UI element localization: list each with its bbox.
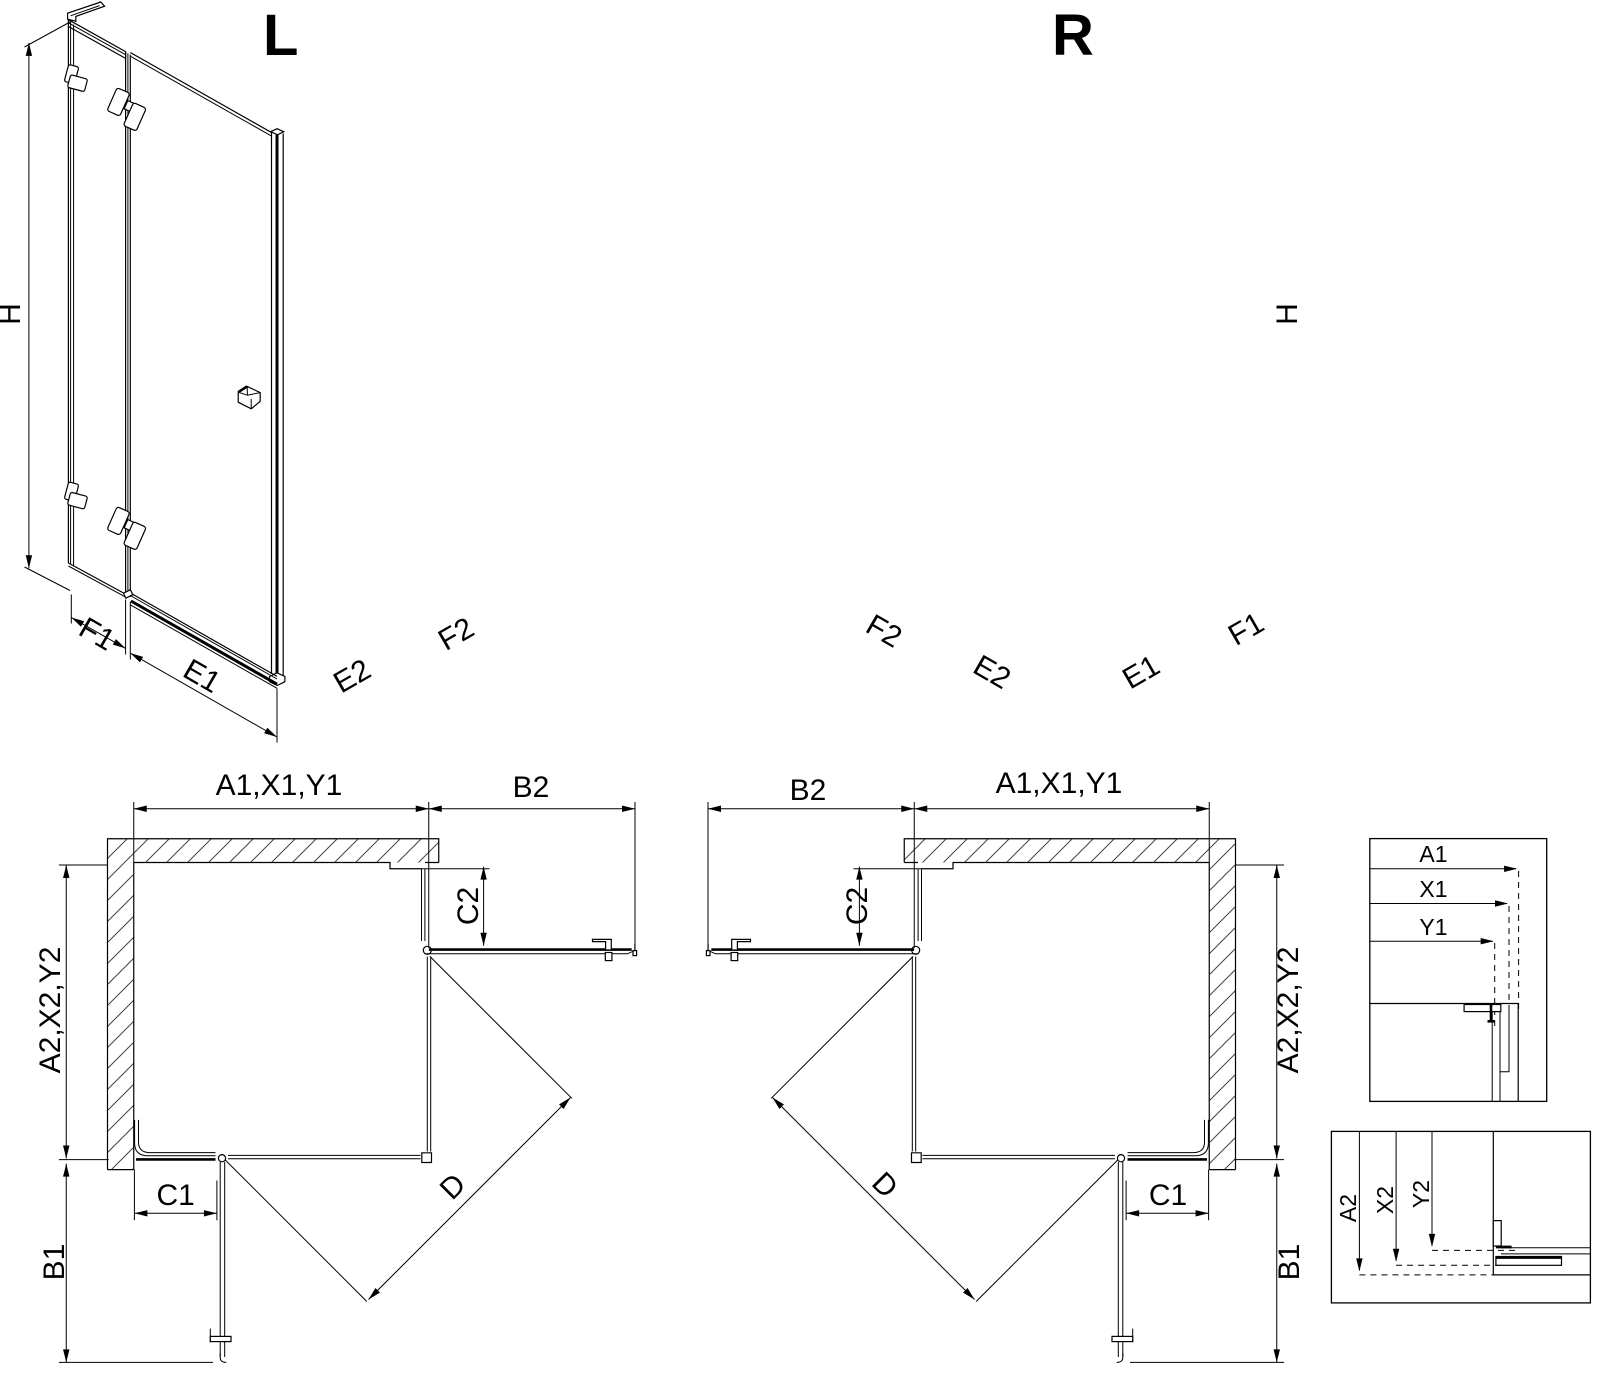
svg-text:H: H	[1271, 303, 1304, 325]
svg-text:Y2: Y2	[1408, 1180, 1434, 1208]
svg-text:C1: C1	[157, 1179, 195, 1212]
svg-text:A2,X2,Y2: A2,X2,Y2	[34, 947, 67, 1074]
svg-text:A1,X1,Y1: A1,X1,Y1	[996, 767, 1123, 800]
svg-text:F2: F2	[433, 611, 480, 657]
svg-text:H: H	[0, 303, 27, 325]
svg-text:C2: C2	[841, 887, 874, 925]
svg-text:A2: A2	[1335, 1194, 1361, 1222]
svg-text:E2: E2	[968, 649, 1016, 696]
svg-text:E1: E1	[1117, 649, 1165, 696]
svg-text:B2: B2	[513, 771, 550, 804]
svg-text:E1: E1	[178, 653, 226, 700]
svg-text:R: R	[1052, 3, 1094, 68]
svg-text:L: L	[263, 3, 298, 68]
svg-text:B2: B2	[790, 774, 827, 807]
svg-text:A1,X1,Y1: A1,X1,Y1	[216, 769, 343, 802]
svg-text:Y1: Y1	[1419, 914, 1447, 940]
svg-text:A2,X2,Y2: A2,X2,Y2	[1272, 947, 1305, 1074]
svg-text:C2: C2	[452, 887, 485, 925]
svg-text:X1: X1	[1419, 876, 1447, 902]
svg-text:F1: F1	[1223, 606, 1270, 652]
svg-text:B1: B1	[38, 1244, 71, 1281]
svg-text:C1: C1	[1149, 1179, 1187, 1212]
svg-text:D: D	[865, 1166, 904, 1205]
svg-text:F1: F1	[73, 611, 120, 657]
svg-text:X2: X2	[1372, 1186, 1398, 1214]
svg-text:D: D	[434, 1168, 473, 1207]
svg-text:E2: E2	[328, 653, 376, 700]
svg-text:A1: A1	[1419, 841, 1447, 867]
svg-text:F2: F2	[860, 608, 907, 654]
svg-text:B1: B1	[1273, 1244, 1306, 1281]
